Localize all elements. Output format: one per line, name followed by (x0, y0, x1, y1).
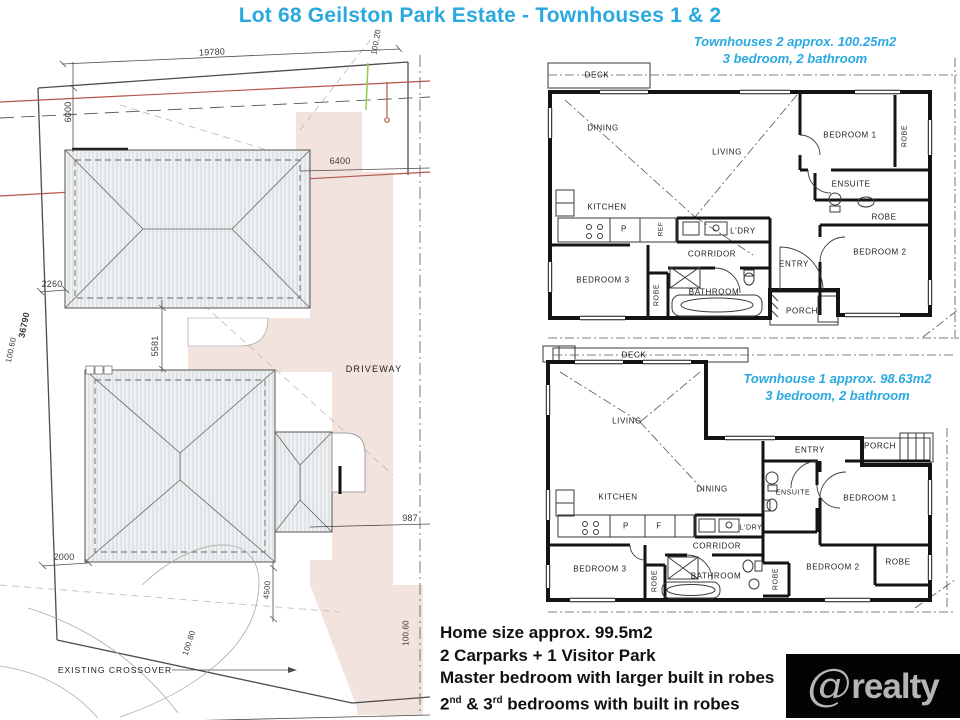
dim-6000: 6000 (63, 102, 73, 123)
room-label-ldry: L'DRY (730, 227, 756, 236)
room-label-bedroom1: BEDROOM 1 (843, 494, 896, 503)
room-label-ensuite: ENSUITE (776, 490, 811, 497)
dim-6400: 6400 (330, 156, 351, 166)
footer-line-1: Home size approx. 99.5m2 (440, 622, 800, 645)
room-label-robe1: ROBE (902, 125, 909, 147)
dim-5581: 5581 (150, 336, 160, 357)
floorplan-townhouse-2: DECK DINING LIVING KITCHEN P REF L'DRY C… (535, 55, 960, 345)
crossover-curves (0, 545, 259, 718)
th1-fixtures (556, 472, 778, 598)
room-label-fridge: F (656, 522, 662, 531)
dim-100-60-right: 100.60 (402, 620, 411, 646)
footer-line-4: 2nd & 3rd bedrooms with built in robes (440, 690, 800, 716)
realty-logo: @realty (786, 654, 960, 718)
room-label-kitchen: KITCHEN (598, 493, 637, 502)
room-label-living: LIVING (612, 417, 642, 426)
room-label-bedroom2: BEDROOM 2 (853, 248, 906, 257)
label-driveway: DRIVEWAY (346, 364, 403, 374)
room-label-entry: ENTRY (779, 260, 809, 269)
logo-name: realty (851, 669, 938, 704)
room-label-robe-b2: ROBE (773, 568, 780, 590)
room-label-pantry: P (621, 225, 627, 234)
caption-th2-line1: Townhouses 2 approx. 100.25m2 (655, 33, 935, 50)
room-label-kitchen: KITCHEN (587, 203, 626, 212)
floorplan-townhouse-1: DECK LIVING DINING KITCHEN P F L'DRY COR… (535, 340, 960, 625)
footer-text: Home size approx. 99.5m2 2 Carparks + 1 … (440, 622, 800, 716)
path-curve (188, 318, 268, 346)
room-label-deck: DECK (622, 351, 647, 360)
room-label-bedroom1: BEDROOM 1 (823, 131, 876, 140)
dim-4500: 4500 (262, 580, 273, 599)
room-label-robe3: ROBE (652, 570, 659, 592)
building-1 (65, 149, 310, 308)
room-label-bathroom: BATHROOM (689, 288, 739, 297)
th2-doors (715, 135, 845, 293)
flyer-page: Lot 68 Geilston Park Estate - Townhouses… (0, 0, 960, 720)
room-label-robe-b1: ROBE (885, 558, 910, 567)
site-plan: 19780 100.20 6000 6400 2260 36790 100.60… (0, 25, 440, 720)
room-label-ldry: L'DRY (740, 525, 763, 532)
room-label-bedroom3: BEDROOM 3 (573, 565, 626, 574)
room-label-porch: PORCH (786, 307, 818, 316)
dim-2000: 2000 (54, 552, 75, 562)
floorplan-th2-drawing (535, 55, 960, 345)
room-label-robe3: ROBE (654, 284, 661, 306)
footer-line-3: Master bedroom with larger built in robe… (440, 667, 800, 690)
room-label-robe2: ROBE (871, 213, 896, 222)
dim-2260: 2260 (42, 279, 63, 289)
room-label-porch: PORCH (864, 442, 896, 451)
dim-19780: 19780 (199, 46, 225, 57)
room-label-deck: DECK (585, 71, 610, 80)
room-label-corridor: CORRIDOR (688, 250, 736, 259)
room-label-ref: REF (658, 222, 665, 237)
room-label-pantry: P (623, 522, 629, 531)
arrowhead (288, 667, 297, 673)
floorplan-th1-drawing (535, 340, 960, 625)
building-2 (85, 366, 332, 562)
room-label-dining: DINING (587, 124, 619, 133)
logo-at-symbol: @ (807, 664, 851, 708)
turning-bay (332, 433, 365, 492)
room-label-corridor: CORRIDOR (693, 542, 741, 551)
room-label-bedroom3: BEDROOM 3 (576, 276, 629, 285)
room-label-bedroom2: BEDROOM 2 (806, 563, 859, 572)
th2-thin-structures (548, 63, 838, 325)
room-label-ensuite: ENSUITE (832, 180, 871, 189)
room-label-living: LIVING (712, 148, 742, 157)
footer-line-2: 2 Carparks + 1 Visitor Park (440, 645, 800, 668)
label-existing-crossover: EXISTING CROSSOVER (58, 665, 172, 675)
room-label-entry: ENTRY (795, 446, 825, 455)
marker-green-line (366, 63, 368, 110)
room-label-bathroom: BATHROOM (691, 572, 741, 581)
dim-987: 987 (402, 513, 418, 523)
room-label-dining: DINING (696, 485, 728, 494)
